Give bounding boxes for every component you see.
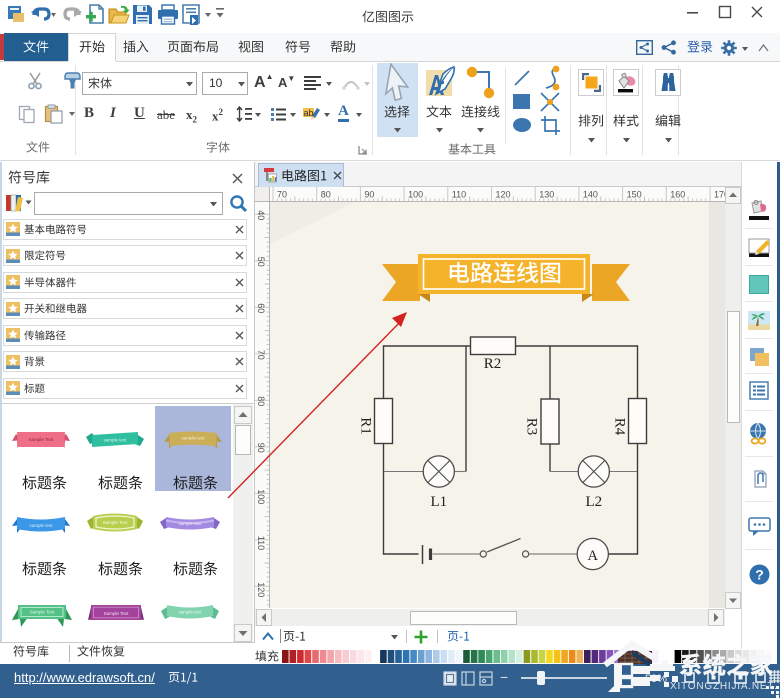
svg-text:80: 80 xyxy=(321,190,331,200)
svg-text:Sample Text: Sample Text xyxy=(104,611,129,616)
svg-text:70: 70 xyxy=(277,190,287,200)
svg-text:40: 40 xyxy=(256,210,266,220)
svg-text:L1: L1 xyxy=(430,494,447,510)
svg-text:130: 130 xyxy=(539,190,554,200)
svg-text:110: 110 xyxy=(256,536,266,550)
svg-text:R2: R2 xyxy=(484,356,502,372)
svg-text:100: 100 xyxy=(408,190,423,200)
svg-text:sample text: sample text xyxy=(29,523,53,528)
svg-text:A: A xyxy=(588,548,599,564)
svg-text:120: 120 xyxy=(256,582,266,597)
svg-text:sample text: sample text xyxy=(181,436,205,441)
svg-text:?: ? xyxy=(755,567,764,583)
svg-text:sample text: sample text xyxy=(103,438,127,443)
svg-text:140: 140 xyxy=(583,190,598,200)
svg-text:Sample Text: Sample Text xyxy=(103,520,128,525)
svg-text:150: 150 xyxy=(627,190,642,200)
svg-text:Sample Text: Sample Text xyxy=(29,437,54,442)
svg-text:120: 120 xyxy=(496,190,511,200)
svg-text:L2: L2 xyxy=(585,494,602,510)
svg-text:110: 110 xyxy=(452,190,466,200)
svg-text:sample text: sample text xyxy=(178,610,202,615)
svg-text:50: 50 xyxy=(256,257,266,267)
svg-text:90: 90 xyxy=(364,190,374,200)
svg-text:160: 160 xyxy=(670,190,685,200)
svg-text:R4: R4 xyxy=(612,418,628,436)
svg-text:R3: R3 xyxy=(524,418,540,436)
svg-text:Sample Text: Sample Text xyxy=(30,610,55,615)
svg-text:170: 170 xyxy=(714,190,725,200)
svg-text:sample text: sample text xyxy=(178,521,202,526)
